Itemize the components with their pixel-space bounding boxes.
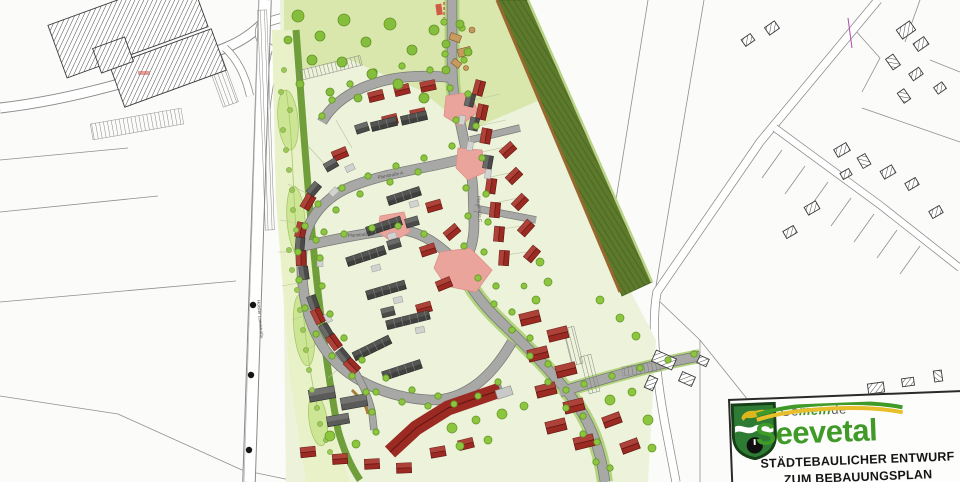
street-tree — [545, 361, 551, 367]
house-red — [396, 463, 411, 474]
street-tree — [421, 231, 427, 237]
lawn-tree — [648, 444, 656, 452]
park-tree — [307, 55, 317, 65]
house-red — [498, 250, 509, 266]
swale-tree — [280, 127, 285, 132]
street-tree — [341, 231, 347, 237]
carport — [484, 169, 491, 179]
lawn-tree — [616, 314, 624, 322]
swale-tree — [278, 89, 283, 94]
street-tree — [365, 173, 371, 179]
existing-building — [880, 165, 896, 179]
street-tree — [447, 85, 453, 91]
lawn-tree — [447, 423, 457, 433]
park-tree — [429, 25, 439, 35]
street-tree — [453, 117, 459, 123]
street-tree — [461, 243, 467, 249]
street-tree — [465, 213, 471, 219]
street-tree — [333, 207, 339, 213]
park-tree — [284, 36, 292, 44]
swale-tree — [309, 387, 314, 392]
street-tree — [369, 409, 375, 415]
house-red — [480, 128, 492, 145]
street-tree — [473, 123, 479, 129]
swale-tree — [294, 287, 299, 292]
street-tree — [435, 393, 441, 399]
swale-tree — [327, 449, 332, 454]
street-tree — [415, 169, 421, 175]
street-tree — [319, 113, 325, 119]
existing-building — [804, 201, 820, 215]
street-tree — [527, 335, 533, 341]
street-tree — [441, 19, 447, 25]
lawn-tree — [352, 440, 360, 448]
title-block: Gemeinde Seevetal STÄDTEBAULICHER ENTWUR… — [728, 390, 960, 482]
swale-tree — [317, 421, 322, 426]
street-tree — [527, 353, 533, 359]
street-tree — [509, 327, 515, 333]
existing-building — [783, 226, 797, 239]
swale-tree — [303, 347, 308, 352]
street-tree — [481, 249, 487, 255]
street-tree — [321, 229, 327, 235]
street-tree — [461, 57, 467, 63]
existing-building — [834, 143, 851, 158]
swale-tree — [306, 367, 311, 372]
swale-tree — [297, 307, 302, 312]
existing-building — [905, 178, 919, 191]
street-tree — [463, 185, 469, 191]
park-tree — [407, 45, 417, 55]
existing-building — [913, 37, 929, 52]
street-tree — [442, 51, 448, 57]
street-tree — [493, 283, 499, 289]
park-tree — [442, 66, 450, 74]
lawn-tree — [605, 395, 615, 405]
street-tree — [609, 373, 615, 379]
lawn-tree — [544, 278, 552, 286]
street-tree — [329, 353, 335, 359]
street-tree — [319, 283, 325, 289]
street-tree — [427, 67, 433, 73]
park-tree — [464, 48, 472, 56]
park-tree — [367, 69, 377, 79]
street-tree — [393, 163, 399, 169]
street-tree — [302, 223, 308, 229]
existing-building — [902, 377, 915, 387]
swale-tree — [314, 405, 319, 410]
street-tree — [341, 335, 347, 341]
street-tree — [580, 431, 586, 437]
street-tree — [475, 393, 481, 399]
existing-building — [909, 67, 923, 80]
street-tree — [373, 429, 379, 435]
park-tree — [315, 31, 325, 41]
swale-tree — [281, 67, 286, 72]
logo-swoosh-icon — [754, 400, 905, 424]
lawn-tree — [472, 416, 480, 424]
street-tree — [317, 255, 323, 261]
street-tree — [383, 375, 389, 381]
street-tree — [637, 365, 643, 371]
existing-building — [857, 154, 871, 169]
house-red — [489, 202, 501, 218]
park-tree — [326, 88, 334, 96]
street-tree — [395, 223, 401, 229]
street-tree — [449, 143, 455, 149]
street-tree — [451, 401, 457, 407]
swale-tree — [286, 167, 291, 172]
swale-tree — [286, 247, 291, 252]
street-tree — [387, 179, 393, 185]
street-tree — [495, 379, 501, 385]
park-tree — [393, 79, 403, 89]
house-red — [364, 459, 380, 470]
utility-dot — [248, 372, 254, 378]
street-tree — [491, 301, 497, 307]
existing-building — [679, 372, 696, 387]
street-tree — [475, 275, 481, 281]
site-plan-map: Horster LandstraßePlanstraße APlanstraße… — [0, 0, 960, 482]
house-red — [493, 226, 504, 242]
utility-dot — [250, 302, 256, 308]
lawn-tree — [596, 296, 604, 304]
street-tree — [359, 357, 365, 363]
street-tree — [339, 185, 345, 191]
lawn-tree — [325, 431, 335, 441]
street-tree — [399, 399, 405, 405]
street-tree — [369, 225, 375, 231]
house-red — [332, 453, 348, 464]
existing-building — [896, 21, 915, 39]
street-tree — [509, 309, 515, 315]
street-tree — [479, 155, 485, 161]
street-tree — [483, 191, 489, 197]
park-tree — [384, 18, 396, 30]
lawn-tree — [632, 332, 640, 340]
street-tree — [329, 97, 335, 103]
street-tree — [425, 403, 431, 409]
swale-tree — [300, 327, 305, 332]
lawn-tree — [484, 436, 492, 444]
street-tree — [421, 155, 427, 161]
street-tree — [373, 389, 379, 395]
street-tree — [563, 387, 569, 393]
street-tree — [313, 237, 319, 243]
park-tree — [354, 94, 362, 102]
park-tree — [296, 80, 304, 88]
street-tree — [545, 379, 551, 385]
park-tree — [442, 40, 450, 48]
lawn-tree — [521, 283, 527, 289]
street-tree — [563, 405, 569, 411]
existing-building — [929, 206, 943, 219]
lawn-tree — [643, 415, 653, 425]
street-tree — [327, 311, 333, 317]
swale-tree — [290, 207, 295, 212]
street-tree — [465, 91, 471, 97]
red-annotation — [138, 71, 150, 75]
street-tree — [315, 201, 321, 207]
lawn-tree — [497, 409, 507, 419]
lawn-tree — [532, 296, 540, 304]
street-tree — [485, 219, 491, 225]
swale-tree — [293, 227, 298, 232]
parking-row — [90, 108, 183, 140]
street-tree — [357, 191, 363, 197]
swale-tree — [287, 107, 292, 112]
park-tree — [419, 93, 429, 103]
street-tree — [399, 63, 405, 69]
lawn-tree — [456, 442, 464, 450]
street-tree — [349, 373, 355, 379]
park-tree — [361, 37, 371, 47]
park-tree — [338, 14, 350, 26]
lawn-tree — [628, 388, 636, 396]
street-tree — [665, 357, 671, 363]
existing-building — [886, 54, 901, 70]
lawn-tree — [520, 402, 528, 410]
park-tree — [292, 10, 304, 22]
street-tree — [296, 277, 302, 283]
existing-building — [897, 89, 910, 103]
street-tree — [347, 81, 353, 87]
street-tree — [295, 249, 301, 255]
house-red — [300, 446, 316, 458]
street-tree — [691, 351, 697, 357]
swale-tree — [283, 147, 288, 152]
street-tree — [581, 381, 587, 387]
street-tree — [313, 331, 319, 337]
street-tree — [409, 387, 415, 393]
swale-tree — [289, 267, 294, 272]
street-tree — [363, 389, 369, 395]
existing-building — [933, 370, 942, 382]
park-tree — [337, 57, 347, 67]
municipality-logo: Gemeinde Seevetal — [754, 401, 877, 450]
utility-dot — [246, 447, 252, 453]
street-tree — [607, 465, 613, 471]
lawn-tree — [536, 258, 544, 266]
carport — [466, 141, 473, 151]
existing-building — [741, 34, 755, 47]
house-red — [430, 446, 447, 458]
existing-building — [765, 21, 780, 35]
park-tree — [456, 20, 464, 28]
street-tree — [580, 413, 586, 419]
swale-tree — [289, 187, 294, 192]
street-tree — [594, 439, 600, 445]
existing-building — [934, 82, 947, 94]
street-tree — [593, 459, 599, 465]
